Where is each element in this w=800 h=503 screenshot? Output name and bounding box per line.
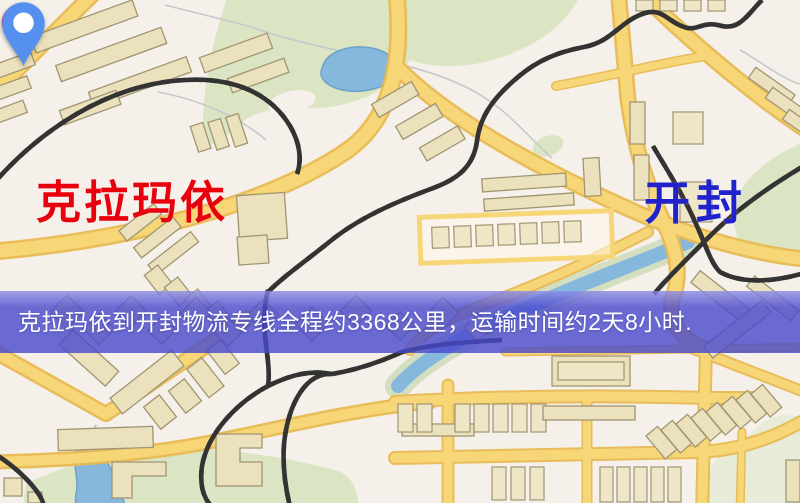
map-shape — [454, 226, 472, 248]
map-shape — [634, 467, 647, 502]
map-shape — [0, 100, 27, 125]
route-info-banner: 克拉玛依到开封物流专线全程约3368公里，运输时间约2天8小时. — [0, 291, 800, 353]
map-shape — [511, 467, 525, 500]
map-shape — [492, 467, 506, 500]
map-shape — [396, 103, 443, 139]
map-shape — [398, 404, 413, 432]
map-shape — [144, 395, 177, 429]
map-shape — [684, 0, 701, 11]
map-shape — [419, 126, 465, 161]
map-shape — [236, 192, 287, 241]
map-shape — [493, 404, 508, 432]
map-shape — [786, 460, 800, 502]
map-shape — [498, 224, 516, 246]
map-shape — [512, 404, 527, 432]
map-shape — [558, 362, 624, 380]
map-shape — [237, 235, 269, 265]
blue-location-pin-icon[interactable] — [0, 0, 47, 69]
map-shape — [476, 225, 494, 247]
map-shape — [455, 404, 470, 432]
map-shape — [530, 467, 544, 500]
map-shape — [617, 467, 630, 502]
map-shape — [636, 0, 653, 11]
route-info-text: 克拉玛依到开封物流专线全程约3368公里，运输时间约2天8小时. — [0, 291, 800, 353]
destination-city-label: 开封 — [644, 180, 748, 226]
map-shape — [660, 0, 677, 11]
map-shape — [58, 426, 154, 450]
map-shape — [630, 102, 645, 144]
map-shape — [417, 404, 432, 432]
map-shape — [432, 227, 450, 249]
map-shape — [600, 467, 613, 502]
map-shape — [543, 406, 635, 420]
map-shape — [564, 221, 582, 243]
map-canvas — [0, 0, 800, 503]
logistics-map: 克拉玛依 开封 克拉玛依到开封物流专线全程约3368公里，运输时间约2天8小时. — [0, 0, 800, 503]
map-shape — [583, 158, 601, 197]
map-shape — [651, 467, 664, 502]
map-shape — [169, 379, 202, 413]
map-shape — [4, 478, 22, 496]
map-shape — [668, 467, 681, 502]
map-shape — [708, 0, 725, 11]
map-shape — [484, 193, 575, 211]
map-shape — [542, 222, 560, 244]
map-shape — [520, 223, 538, 245]
map-shape — [482, 173, 567, 192]
pin-body — [2, 2, 45, 66]
map-shape — [474, 404, 489, 432]
map-shape — [740, 432, 742, 503]
map-shape — [673, 112, 703, 144]
pin-hole — [13, 12, 34, 33]
origin-city-label: 克拉玛依 — [36, 180, 228, 225]
